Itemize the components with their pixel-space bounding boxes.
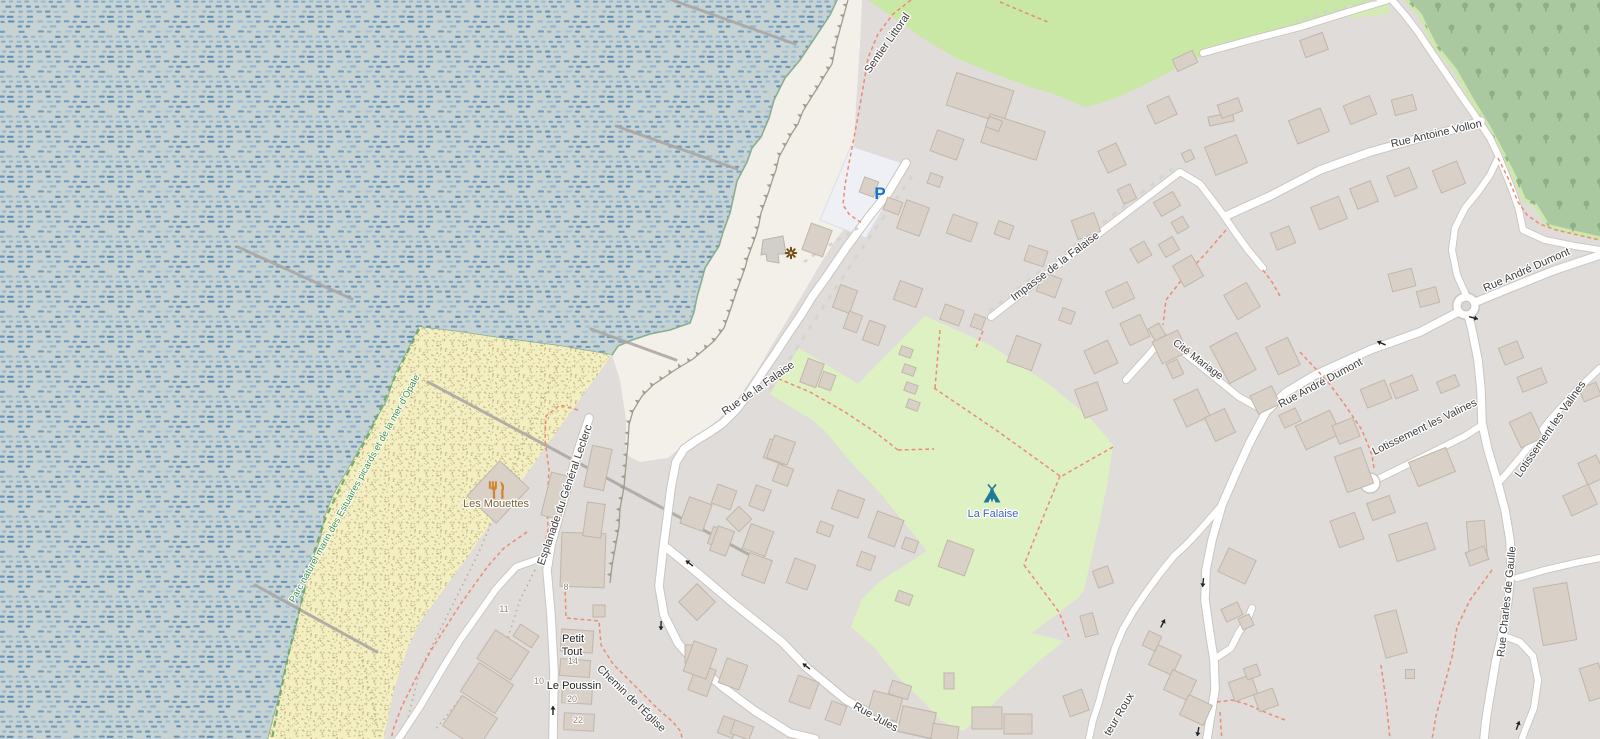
svg-text:14: 14	[568, 656, 578, 666]
svg-text:11: 11	[499, 604, 508, 614]
svg-text:P: P	[874, 184, 885, 203]
svg-text:La Falaise: La Falaise	[968, 508, 1019, 520]
svg-text:22: 22	[573, 715, 583, 725]
svg-text:8: 8	[563, 582, 568, 592]
svg-text:10: 10	[534, 676, 544, 686]
svg-text:Les Mouettes: Les Mouettes	[463, 498, 530, 510]
svg-text:Petit: Petit	[562, 633, 584, 645]
svg-text:20: 20	[567, 694, 577, 704]
svg-text:Le Poussin: Le Poussin	[547, 680, 601, 692]
